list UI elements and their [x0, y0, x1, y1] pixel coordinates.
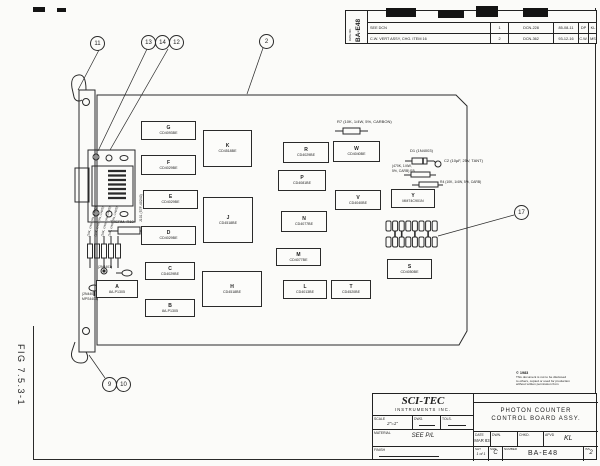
label-connector: J101 (57F-40240): [139, 194, 143, 222]
rev-app: KL: [588, 23, 597, 33]
finish-cell: FINISH: [373, 447, 474, 461]
label-r7: R7 (10K, 1/4W, 5%, CARBON): [337, 120, 392, 125]
scale-cell: SCALE 2"=1": [373, 416, 413, 430]
binder-mark: [476, 6, 498, 17]
ic-N: NCD4077BE: [281, 211, 327, 232]
chkd-cell: CHKD.: [518, 432, 544, 447]
dwg-cell: DWG.: [413, 416, 441, 430]
revision-docno-caption: DWG NO.: [348, 11, 352, 41]
resistor-network: [386, 221, 437, 247]
revision-docno: BA-E48: [355, 10, 362, 42]
ic-D: DCD4029BE: [141, 226, 196, 245]
rev-date: 93-12-16: [553, 34, 578, 44]
ic-G: GCD4093BE: [141, 121, 196, 140]
label-q1: (2N4401): [98, 266, 112, 270]
ic-P: PCD4081BE: [278, 170, 326, 191]
ic-B: B8A-P1305: [145, 299, 195, 317]
company-cell: SCI-TEC INSTRUMENTS INC.: [373, 394, 474, 416]
scale-value: 2"=1": [373, 421, 412, 426]
binder-mark: [438, 10, 464, 18]
rev-num: 2: [490, 34, 508, 44]
tols-label: TOLS.: [441, 416, 473, 421]
finish-blank: [379, 456, 439, 457]
tols-blank: [448, 425, 466, 426]
balloon-11: 11: [90, 36, 105, 51]
vertical-resistors: [88, 236, 121, 268]
chkd-label: CHKD.: [518, 432, 543, 437]
size-cell: SIZE C: [489, 447, 503, 461]
finish-label: FINISH: [373, 447, 473, 452]
rev-app: MS: [588, 34, 597, 44]
balloon-9: 9: [102, 377, 117, 392]
figure-number: FIG 7.5.3-1: [16, 344, 26, 434]
rev-dcn: DCN-362: [508, 34, 553, 44]
ic-M: MCD4077BE: [276, 248, 321, 266]
revision-row-2: C.W. VERT ASSY, CHG. ITEM 16 2 DCN-362 9…: [368, 33, 597, 44]
label-c2: C2 (10µF, 25V, TANT): [444, 159, 483, 164]
balloon-2: 2: [259, 34, 274, 49]
revision-row-1: SEE DCN 1 DCN-228 85-08-11 DP KL: [368, 22, 597, 33]
rev-by: C.W.: [578, 34, 588, 44]
title-block: SCI-TEC INSTRUMENTS INC. NEXT ASSEMBLY B…: [372, 393, 597, 460]
label-d1: D1 (1N4003): [410, 149, 433, 154]
balloon-13: 13: [141, 35, 156, 50]
ic-H: HCD4518BE: [202, 271, 262, 307]
drawing-title-cell: PHOTON COUNTER CONTROL BOARD ASSY.: [474, 403, 598, 432]
company-subtitle: INSTRUMENTS INC.: [373, 407, 473, 412]
company-logo: SCI-TEC: [373, 395, 473, 407]
ic-C: CCD4029BE: [145, 262, 195, 280]
border-left: [33, 326, 34, 459]
binder-mark: [33, 7, 45, 12]
connector-pins: [108, 171, 126, 198]
sht-cell: SHT 1 of 1: [474, 447, 489, 461]
label-r4: R4 (10K, 1/4W, 5%, CARB): [440, 181, 481, 185]
drawing-title-line1: PHOTON COUNTER: [474, 408, 598, 414]
ic-A: A8A-P1305: [96, 280, 138, 298]
connector-shell: [75, 168, 89, 202]
sht-value: 1 of 1: [474, 452, 488, 456]
material-cell: MATERIAL SEE P/L: [373, 430, 474, 447]
label-q2-line2: MPS4403): [82, 298, 98, 302]
rev-desc: C.W. VERT ASSY, CHG. ITEM 16: [368, 34, 490, 44]
rev-dcn: DCN-228: [508, 23, 553, 33]
revision-docno-cell: DWG NO. BA-E48: [346, 11, 368, 43]
ic-R: RCD4029BE: [283, 142, 329, 163]
ic-L: LCD4013BE: [283, 280, 327, 299]
label-r5-line2: 5%, CARB) R5: [392, 170, 415, 174]
apvd-value: KL: [564, 435, 598, 442]
dwn-label: DWN.: [491, 432, 517, 437]
tols-cell: TOLS.: [441, 416, 474, 430]
transistor-q1: [122, 270, 132, 276]
date-cell: DATE MAR 83: [474, 432, 491, 447]
cap-c2: [435, 161, 441, 167]
revision-table: DWG NO. BA-E48 SEE DCN 1 DCN-228 85-08-1…: [345, 10, 597, 44]
ic-K: KCD4518BE: [203, 130, 252, 167]
balloon-10: 10: [116, 377, 131, 392]
binder-mark: [386, 8, 416, 17]
ic-W: WCD4040BE: [333, 141, 380, 162]
binder-mark: [523, 8, 548, 17]
balloon-14: 14: [155, 35, 170, 50]
balloon-12: 12: [169, 35, 184, 50]
iss-cell: ISS 2: [584, 447, 598, 461]
ic-E: ECD4029BE: [143, 190, 198, 209]
date-label: DATE: [474, 432, 490, 437]
dwg-label: DWG.: [413, 416, 440, 421]
ic-S: SCD4050BE: [387, 259, 432, 279]
rev-by: DP: [578, 23, 588, 33]
dwn-cell: DWN.: [491, 432, 518, 447]
next-assembly-cell: NEXT ASSEMBLY BA-C01: [474, 394, 598, 403]
rev-num: 1: [490, 23, 508, 33]
drawing-title-line2: CONTROL BOARD ASSY.: [474, 416, 598, 422]
ic-T: TCD4520BE: [331, 280, 371, 299]
ic-J: JCD4518BE: [203, 197, 253, 243]
panel-hole-top: [83, 99, 90, 106]
ic-F: FCD4029BE: [141, 155, 196, 175]
panel-hole-bottom: [83, 328, 90, 335]
rev-date: 85-08-11: [553, 23, 578, 33]
ic-V: VCD4040BE: [335, 190, 381, 210]
dwg-blank: [419, 425, 435, 426]
apvd-cell: APVD KL: [544, 432, 598, 447]
ic-Y: YMM74C901N: [391, 189, 435, 208]
number-cell: NUMBER BA-E48: [503, 447, 584, 461]
balloon-17: 17: [514, 205, 529, 220]
binder-mark: [57, 8, 66, 12]
copyright-line: without written permission from: [516, 383, 596, 387]
rev-desc: SEE DCN: [368, 23, 490, 33]
date-value: MAR 83: [474, 438, 490, 443]
drawing-sheet: FIG 7.5.3-1 A8A-P1305 B8A-P1305 CCD4029B…: [0, 0, 600, 466]
